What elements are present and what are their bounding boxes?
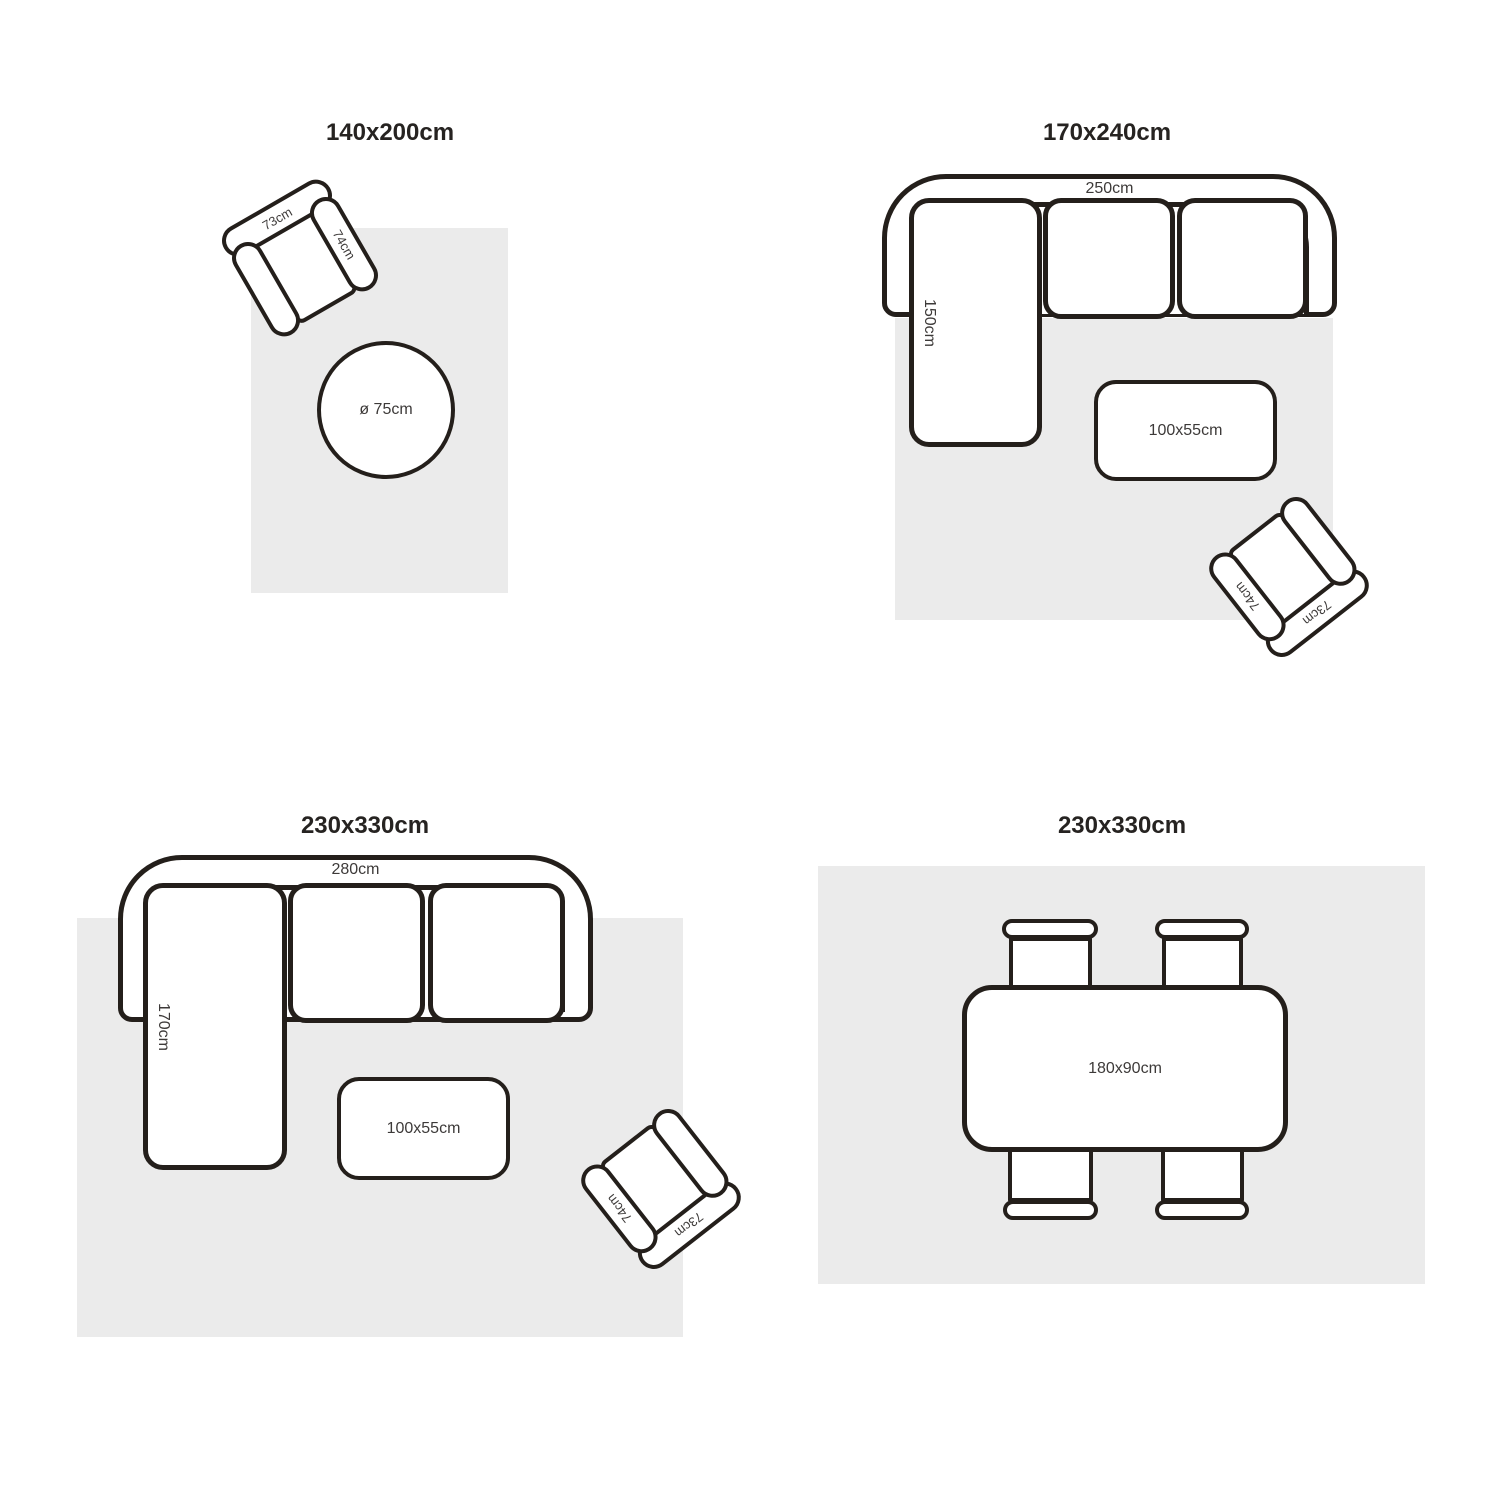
- dining-chair-seat: [1008, 1148, 1093, 1202]
- dining-table-size-label: 180x90cm: [1088, 1061, 1162, 1077]
- dining-chair-back: [1003, 1200, 1098, 1220]
- rug-size-guide: 140x200cm 73cm 74cm ø 75cm 170x240cm 250…: [0, 0, 1500, 1500]
- dining-chair-seat: [1161, 1148, 1244, 1202]
- size-title: 230x330cm: [1058, 814, 1186, 838]
- dining-chair-back: [1155, 919, 1249, 939]
- dining-chair-seat: [1009, 937, 1092, 989]
- dining-chair-seat: [1162, 937, 1243, 989]
- quadrant-230x330-dining: 230x330cm 180x90cm: [0, 0, 1500, 1500]
- dining-table: 180x90cm: [962, 985, 1288, 1152]
- dining-chair-back: [1155, 1200, 1249, 1220]
- dining-chair-back: [1002, 919, 1098, 939]
